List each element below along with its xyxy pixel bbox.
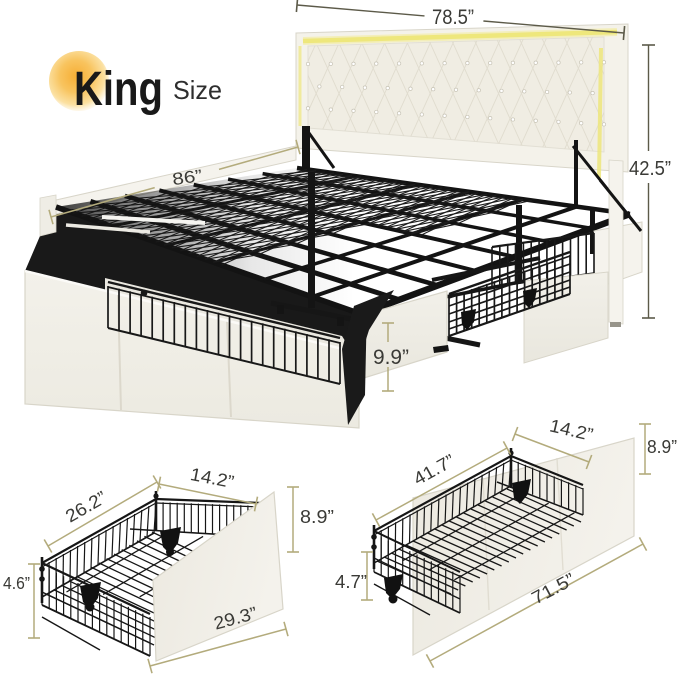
svg-text:King: King bbox=[74, 63, 163, 116]
svg-text:8.9”: 8.9” bbox=[300, 507, 334, 527]
svg-text:Size: Size bbox=[173, 75, 222, 105]
svg-text:78.5”: 78.5” bbox=[432, 6, 474, 29]
svg-text:4.7”: 4.7” bbox=[335, 572, 367, 592]
svg-text:42.5”: 42.5” bbox=[629, 157, 671, 180]
svg-text:9.9”: 9.9” bbox=[373, 346, 409, 369]
svg-text:4.6”: 4.6” bbox=[3, 573, 30, 593]
svg-text:8.9”: 8.9” bbox=[647, 437, 677, 457]
